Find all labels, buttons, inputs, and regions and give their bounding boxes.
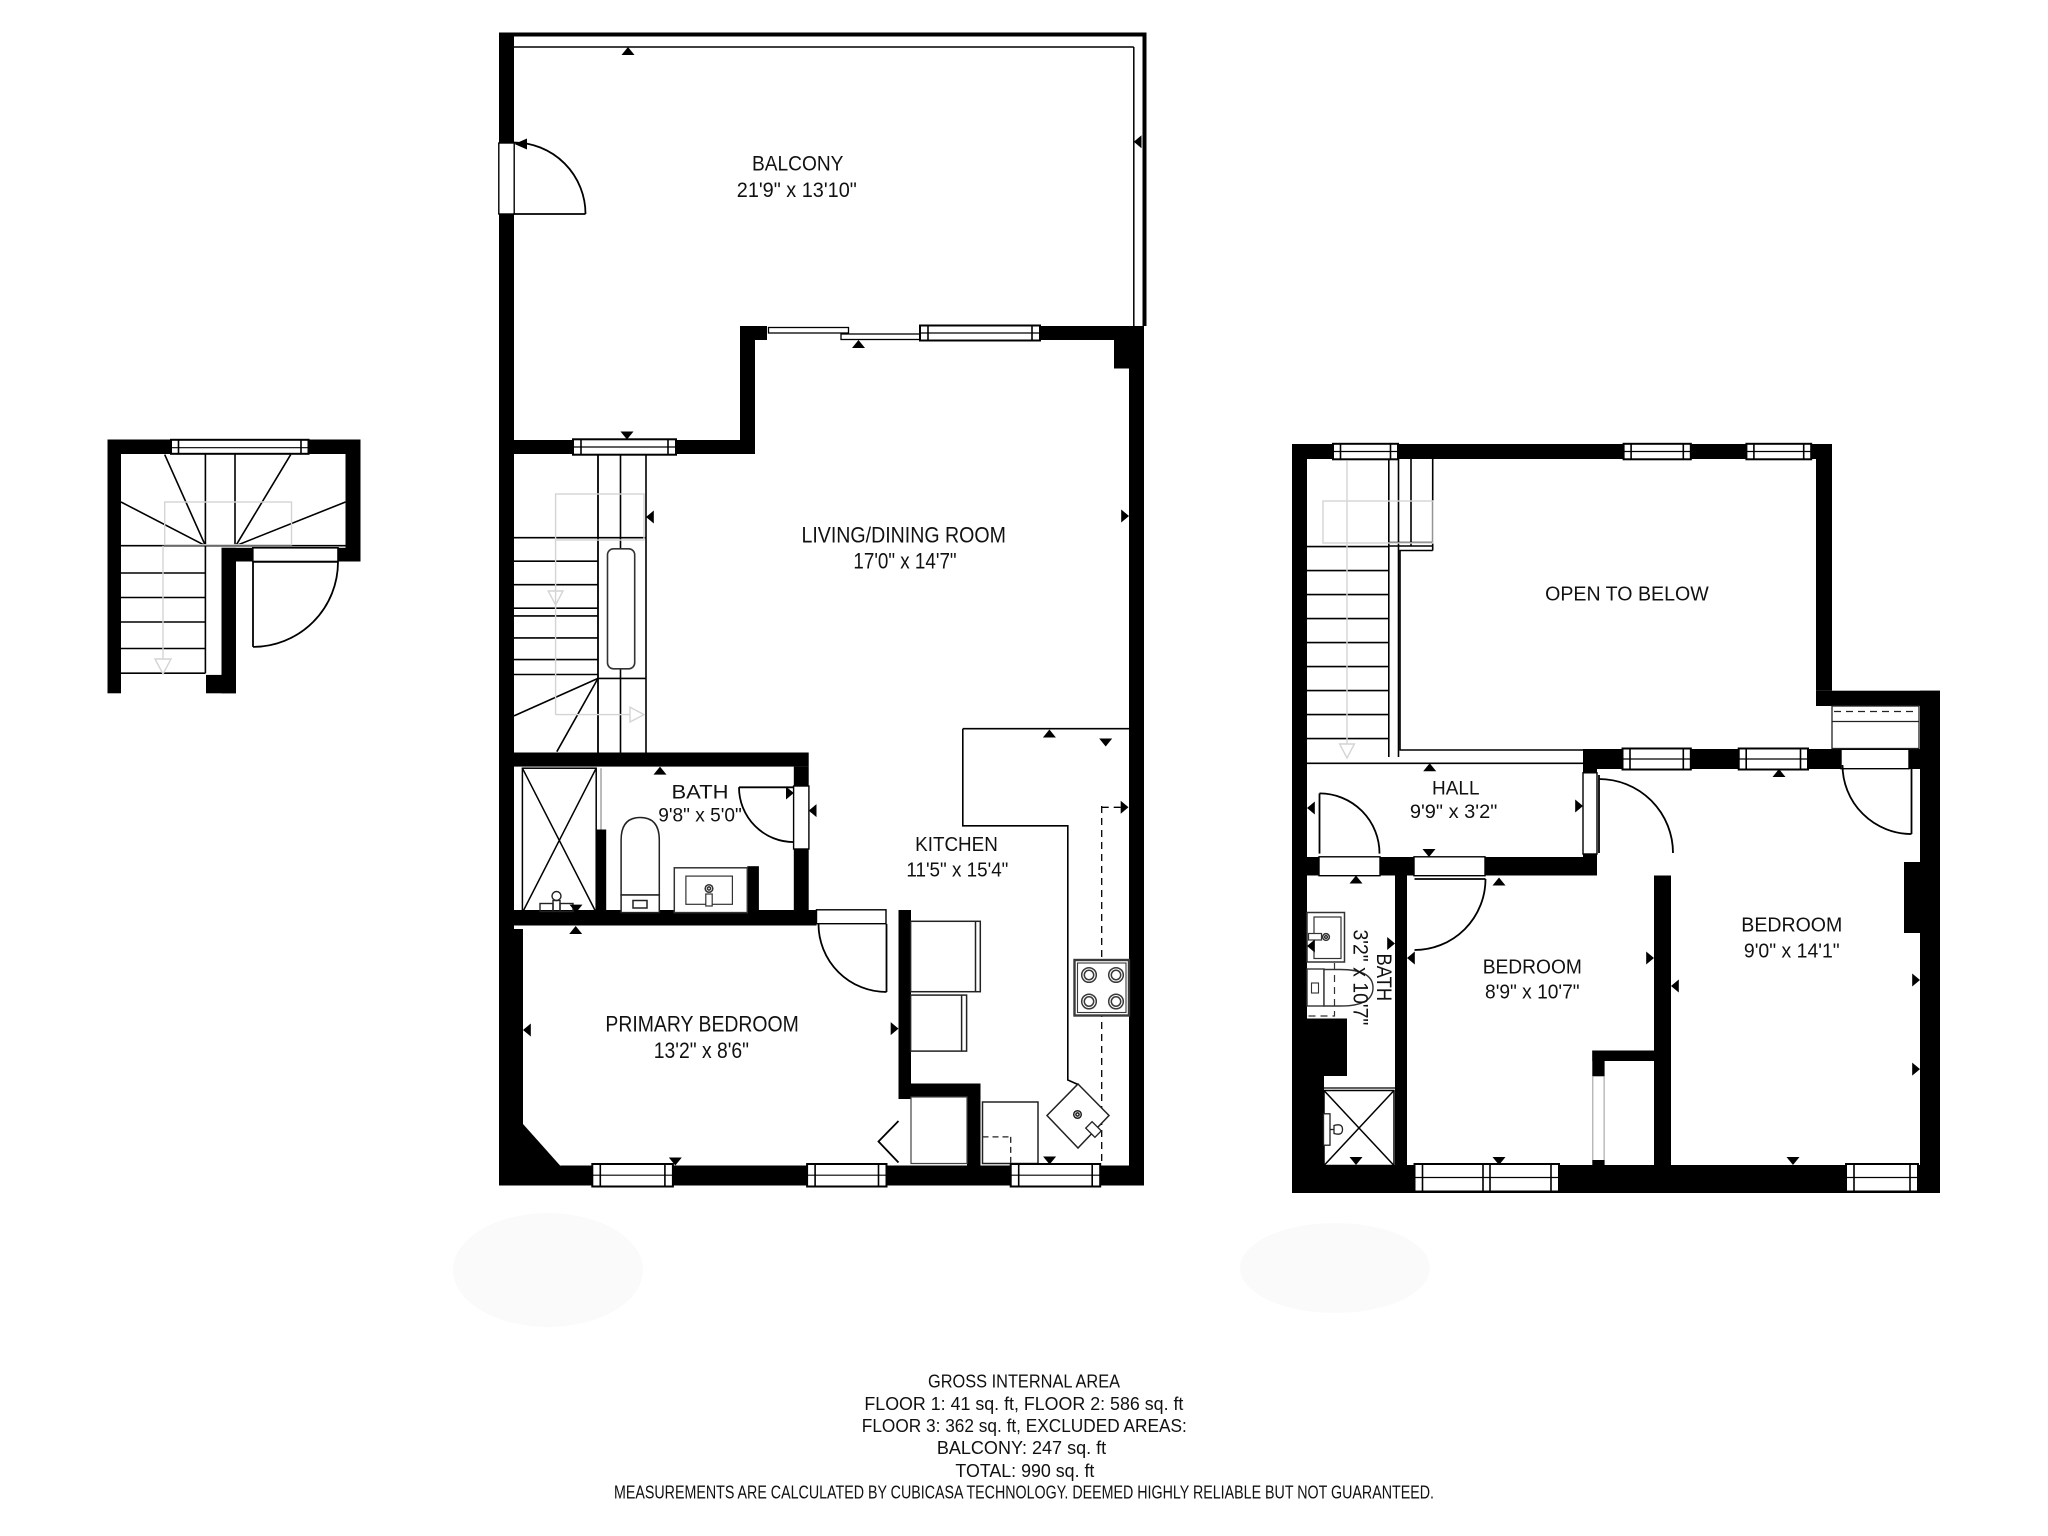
svg-text:FLOOR 3: 362 sq. ft, EXCLUDED: FLOOR 3: 362 sq. ft, EXCLUDED AREAS: (862, 1415, 1187, 1436)
svg-text:21'9" x 13'10": 21'9" x 13'10" (737, 178, 857, 202)
svg-text:13'2" x 8'6": 13'2" x 8'6" (654, 1038, 749, 1063)
svg-text:9'9" x 3'2": 9'9" x 3'2" (1410, 801, 1498, 823)
svg-text:OPEN TO BELOW: OPEN TO BELOW (1545, 582, 1709, 605)
svg-text:BALCONY: BALCONY (752, 152, 844, 176)
svg-text:BEDROOM: BEDROOM (1741, 914, 1842, 937)
svg-text:3'2" x 10'7": 3'2" x 10'7" (1349, 929, 1372, 1025)
svg-text:BATH: BATH (1372, 954, 1395, 1002)
svg-text:GROSS INTERNAL AREA: GROSS INTERNAL AREA (928, 1370, 1121, 1391)
svg-text:PRIMARY BEDROOM: PRIMARY BEDROOM (605, 1012, 798, 1037)
svg-text:8'9" x 10'7": 8'9" x 10'7" (1485, 980, 1580, 1003)
svg-text:11'5" x 15'4": 11'5" x 15'4" (906, 858, 1008, 881)
svg-text:TOTAL: 990 sq. ft: TOTAL: 990 sq. ft (955, 1460, 1095, 1481)
svg-text:BALCONY: 247 sq. ft: BALCONY: 247 sq. ft (937, 1437, 1107, 1458)
svg-text:MEASUREMENTS ARE CALCULATED BY: MEASUREMENTS ARE CALCULATED BY CUBICASA … (614, 1482, 1434, 1503)
svg-text:17'0" x 14'7": 17'0" x 14'7" (853, 548, 956, 573)
svg-text:HALL: HALL (1432, 777, 1480, 799)
svg-text:BATH: BATH (672, 781, 729, 803)
svg-text:9'0" x 14'1": 9'0" x 14'1" (1744, 940, 1840, 963)
svg-text:BEDROOM: BEDROOM (1483, 955, 1582, 978)
svg-text:FLOOR 1: 41 sq. ft, FLOOR 2: 5: FLOOR 1: 41 sq. ft, FLOOR 2: 586 sq. ft (864, 1393, 1184, 1414)
svg-text:KITCHEN: KITCHEN (915, 833, 998, 856)
svg-text:LIVING/DINING ROOM: LIVING/DINING ROOM (801, 522, 1006, 547)
svg-text:9'8" x 5'0": 9'8" x 5'0" (658, 804, 742, 826)
